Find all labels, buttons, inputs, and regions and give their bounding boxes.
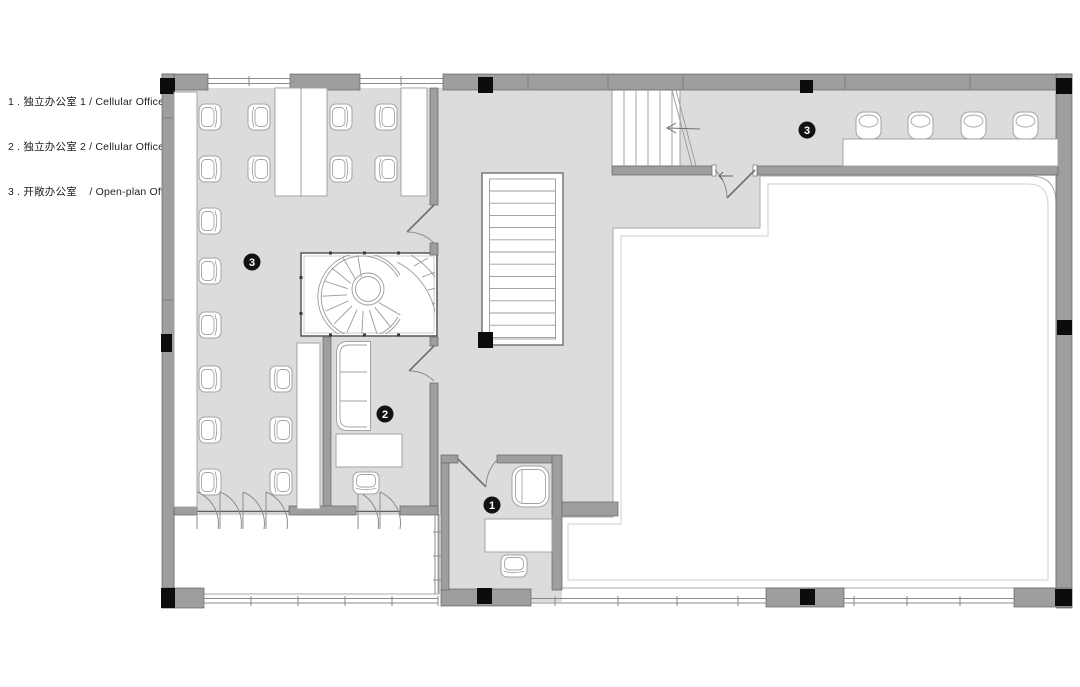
wall-office2-east-stub: [430, 337, 438, 346]
wall-office1-west: [441, 463, 449, 590]
window-bottom-groups: [204, 596, 1014, 606]
wall-under-strip: [757, 166, 1058, 175]
svg-text:3: 3: [804, 125, 810, 137]
room-label-office2: 2: [377, 406, 394, 423]
large-white-room: [560, 176, 1056, 588]
spiral-stair: [300, 252, 453, 342]
svg-text:2: 2: [382, 409, 388, 421]
wall-open-plan-east-upper: [430, 88, 438, 205]
svg-text:1: 1: [489, 500, 495, 512]
wall-office1-north-2: [497, 455, 553, 463]
room-label-open-plan-right: 3: [799, 122, 816, 139]
armchair-office1: [512, 466, 549, 507]
room-label-open-plan-left: 3: [244, 254, 261, 271]
window-top-1: [208, 76, 290, 86]
desk-office2: [336, 434, 402, 467]
desk-counter-west: [174, 92, 197, 507]
wall-office2-east: [430, 383, 438, 512]
desk: [275, 88, 301, 196]
wall-office1-east: [552, 455, 562, 590]
desk: [297, 343, 320, 509]
wall-hall-cap: [558, 502, 618, 516]
wall-open-plan-east-lower: [430, 243, 438, 255]
desk: [301, 88, 327, 196]
room-label-office1: 1: [484, 497, 501, 514]
wall-office1-north-1: [441, 455, 458, 463]
floor-plan-page: 1 . 独立办公室 1 / Cellular Office 1 2 . 独立办公…: [0, 0, 1080, 687]
wall-under-stair: [612, 166, 715, 175]
floor-plan-drawing: 3 2 1 3: [0, 0, 1080, 687]
central-stair: [482, 173, 563, 345]
window-top-2: [360, 76, 443, 86]
desk-counter-north: [843, 139, 1058, 166]
desk: [401, 88, 427, 196]
terrace: [174, 514, 438, 594]
desk-office1: [485, 519, 552, 552]
wall-office2-west: [323, 337, 331, 512]
wall-top-3: [443, 74, 1072, 90]
sofa-office2: [337, 342, 371, 431]
svg-text:3: 3: [249, 257, 255, 269]
wall-south-seg-3: [400, 506, 438, 515]
